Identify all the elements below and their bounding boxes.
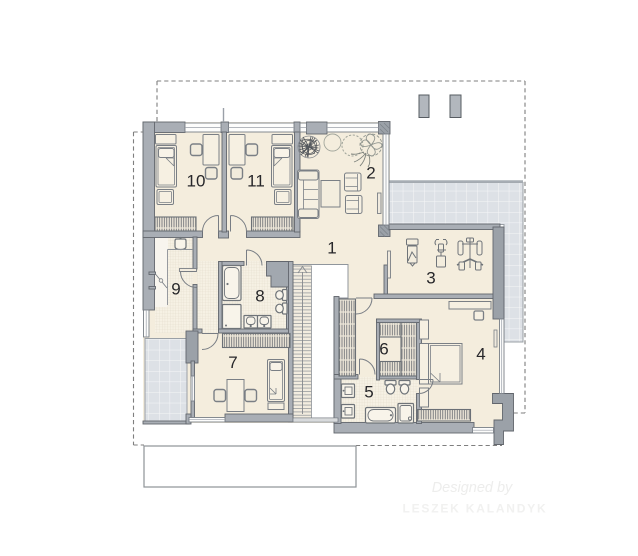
svg-text:6: 6: [379, 340, 388, 359]
svg-text:8: 8: [255, 287, 264, 306]
svg-text:7: 7: [228, 353, 237, 372]
svg-text:Designed by: Designed by: [432, 480, 513, 496]
svg-text:3: 3: [426, 269, 435, 288]
svg-text:1: 1: [327, 239, 336, 258]
svg-text:9: 9: [171, 280, 180, 299]
svg-text:4: 4: [476, 345, 485, 364]
svg-text:2: 2: [366, 164, 375, 183]
svg-text:5: 5: [364, 383, 373, 402]
svg-text:LESZEK KALANDYK: LESZEK KALANDYK: [402, 502, 547, 516]
svg-text:11: 11: [247, 172, 265, 191]
svg-text:10: 10: [187, 172, 206, 191]
